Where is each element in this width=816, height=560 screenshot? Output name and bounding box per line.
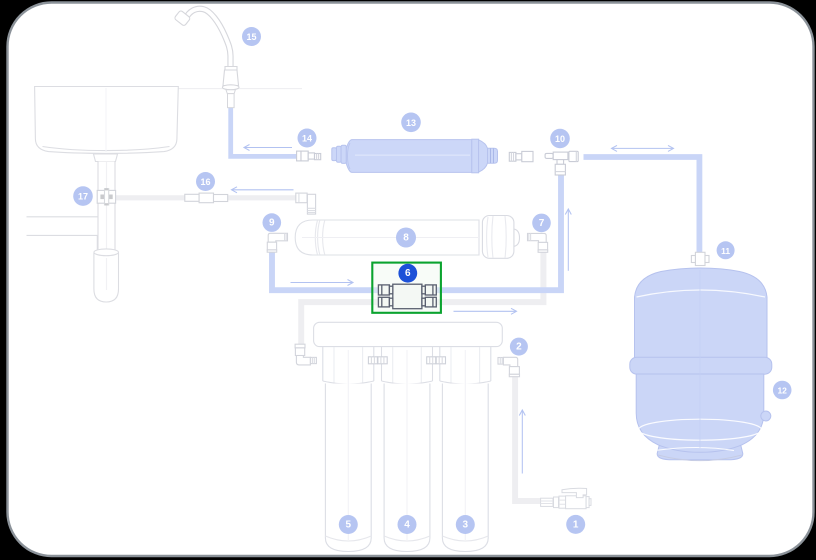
svg-text:9: 9 bbox=[269, 218, 275, 229]
svg-text:10: 10 bbox=[555, 134, 565, 144]
svg-text:2: 2 bbox=[516, 342, 522, 353]
svg-text:1: 1 bbox=[573, 519, 579, 530]
svg-text:6: 6 bbox=[405, 268, 411, 279]
svg-text:14: 14 bbox=[302, 134, 312, 144]
svg-text:17: 17 bbox=[78, 192, 88, 202]
svg-text:3: 3 bbox=[463, 520, 469, 531]
svg-text:11: 11 bbox=[721, 246, 730, 256]
svg-text:12: 12 bbox=[777, 386, 787, 396]
svg-text:16: 16 bbox=[200, 177, 210, 187]
svg-text:13: 13 bbox=[406, 118, 416, 128]
svg-text:4: 4 bbox=[404, 520, 410, 531]
svg-text:7: 7 bbox=[539, 218, 545, 229]
svg-text:5: 5 bbox=[346, 520, 352, 531]
svg-text:15: 15 bbox=[246, 32, 256, 42]
svg-text:8: 8 bbox=[403, 233, 409, 244]
